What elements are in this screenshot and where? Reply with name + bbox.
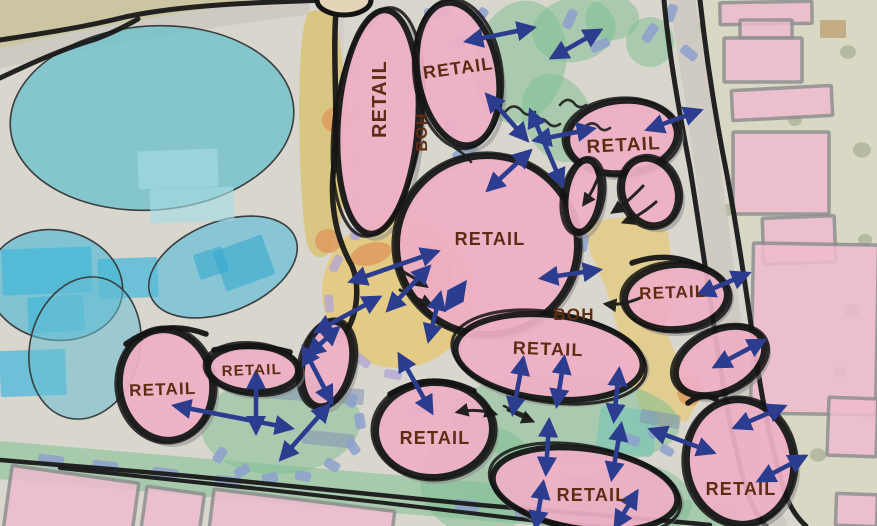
- existing-building: [731, 85, 832, 120]
- existing-building: [740, 20, 792, 38]
- retail-label: RETAIL: [706, 479, 777, 499]
- masterplan-canvas: RETAILBOHRETAILRETAILRETAILRETAILBOHRETA…: [0, 0, 877, 526]
- retail-label: RETAIL: [369, 60, 391, 138]
- flow-arrow-icon: [546, 422, 549, 472]
- retail-label: RETAIL: [512, 338, 584, 360]
- boh-label: BOH: [553, 305, 594, 324]
- boundary-dash: [324, 294, 335, 313]
- existing-building: [820, 20, 846, 38]
- entry-node-blob: [317, 0, 371, 15]
- tree-canopy: [840, 45, 856, 59]
- existing-building: [835, 493, 877, 526]
- retail-label: RETAIL: [129, 379, 197, 400]
- existing-building: [140, 486, 205, 526]
- roof-highlight: [137, 149, 218, 190]
- tree-canopy: [810, 448, 826, 462]
- retail-label: RETAIL: [221, 361, 282, 380]
- masterplan-diagram: RETAILBOHRETAILRETAILRETAILRETAILBOHRETA…: [0, 0, 877, 526]
- existing-building: [827, 397, 877, 457]
- retail-label: RETAIL: [557, 485, 628, 505]
- existing-building: [724, 38, 802, 82]
- retail-label: RETAIL: [455, 229, 526, 249]
- retail-label: RETAIL: [400, 428, 471, 448]
- boh-label: BOH: [414, 112, 431, 151]
- retail-label: RETAIL: [586, 133, 661, 158]
- roof-highlight: [149, 187, 234, 224]
- retail-label: RETAIL: [639, 282, 707, 303]
- existing-building: [751, 243, 877, 415]
- existing-building: [733, 132, 829, 214]
- tree-canopy: [853, 142, 871, 157]
